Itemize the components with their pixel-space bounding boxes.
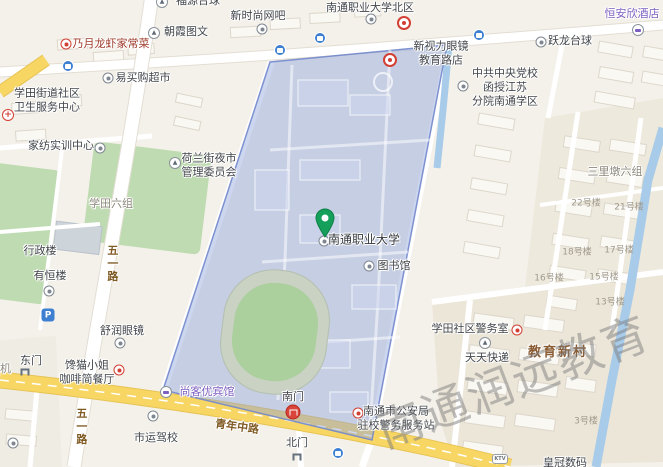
label-line: 新视力眼镜 — [414, 39, 469, 53]
building-label: 18号楼 — [562, 247, 591, 258]
building-label: 21号楼 — [614, 202, 643, 213]
poi-label-health-center[interactable]: 学田街道社区 卫生服务中心 — [14, 86, 80, 114]
label-line: 荷兰街夜市 — [182, 151, 237, 165]
poi-label-billiards-yuelong[interactable]: 跃龙台球 — [548, 34, 592, 48]
poi-label-inn[interactable]: 尚客优宾馆 — [180, 385, 235, 399]
east-gate-icon[interactable] — [21, 369, 30, 376]
building-label: 3号楼 — [574, 416, 598, 427]
building-label: 16号楼 — [534, 273, 563, 284]
night-market-office-icon[interactable] — [169, 157, 181, 169]
poi-label-training-center[interactable]: 家纺实训中心 — [28, 139, 94, 153]
poi-label-police-room[interactable]: 学田社区警务室 — [432, 322, 509, 336]
label-line: 驻校警务服务站 — [358, 418, 435, 432]
building-label: 13号楼 — [595, 297, 624, 308]
glasses-shop-marker-icon[interactable] — [383, 53, 397, 67]
district-label-sanlidun6: 三里墩六组 — [588, 165, 643, 179]
school-north-campus-icon[interactable] — [366, 14, 377, 25]
poi-label-driving-school[interactable]: 市运驾校 — [134, 431, 178, 445]
poi-label-chaoxia[interactable]: 朝霞图文 — [164, 25, 208, 39]
map-canvas[interactable]: + P KTV 福源台球 朝霞图文 乃月龙虾家常菜 新时尚网吧 南通职业大学北区… — [0, 0, 663, 467]
small-poi-icon[interactable] — [8, 438, 19, 449]
gate-label-east[interactable]: 东门 — [20, 354, 42, 368]
poi-label-cafe[interactable]: 馋猫小姐 咖啡简餐厅 — [60, 358, 115, 386]
supermarket-icon[interactable] — [103, 73, 114, 84]
label-line: 教育路店 — [414, 53, 469, 67]
bus-stop-icon[interactable] — [314, 32, 326, 44]
north-gate-icon[interactable] — [293, 454, 302, 461]
party-school-icon[interactable] — [458, 81, 469, 92]
label-line: 馋猫小姐 — [60, 358, 115, 372]
training-center-icon[interactable] — [95, 143, 106, 154]
poi-label-naiyue[interactable]: 乃月龙虾家常菜 — [73, 37, 150, 51]
poi-label-admin-building[interactable]: 行政楼 — [24, 244, 57, 258]
label-line: 函授江苏 — [472, 80, 538, 94]
optical-shop-icon[interactable] — [115, 338, 126, 349]
bus-stop-icon[interactable] — [274, 44, 286, 56]
building-label: 15号楼 — [589, 272, 618, 283]
bus-stop-icon[interactable] — [473, 29, 485, 41]
district-label-jiaoyu-xincun: 教育新村 — [528, 345, 588, 361]
restaurant-icon[interactable] — [61, 39, 72, 50]
poi-label-supermarket[interactable]: 易买购超市 — [116, 71, 171, 85]
health-center-cross-icon[interactable]: + — [2, 109, 14, 121]
gate-label-south[interactable]: 南门 — [282, 390, 304, 404]
poi-label-university[interactable]: 南通职业大学 — [328, 233, 400, 248]
label-line: 咖啡简餐厅 — [60, 372, 115, 386]
internet-cafe-icon[interactable] — [257, 24, 268, 35]
building-label: 22号楼 — [571, 198, 600, 209]
bus-stop-icon[interactable] — [332, 447, 344, 459]
road-label-wuyi-south: 五一路 — [74, 408, 88, 447]
hotel-bed-icon[interactable] — [632, 24, 644, 36]
poi-label-night-market[interactable]: 荷兰街夜市 管理委员会 — [182, 151, 237, 179]
billiards-hall-icon[interactable] — [536, 37, 547, 48]
poi-label-north-campus[interactable]: 南通职业大学北区 — [326, 1, 414, 15]
label-line: 学田街道社区 — [14, 86, 80, 100]
building-label: 17号楼 — [604, 245, 633, 256]
poi-label-express[interactable]: 天天快递 — [465, 351, 509, 365]
library-icon[interactable] — [364, 261, 375, 272]
red-marker-icon[interactable] — [397, 16, 411, 30]
bus-stop-icon[interactable] — [62, 60, 74, 72]
driving-school-icon[interactable] — [148, 411, 159, 422]
poi-label-optical[interactable]: 舒润眼镜 — [100, 324, 144, 338]
poi-label-digital-shop[interactable]: 皇冠数码 — [543, 456, 587, 467]
label-line: 中共中央党校 — [472, 66, 538, 80]
poi-label-hotel-hengan[interactable]: 恒安欣酒店 — [605, 7, 660, 21]
poi-label-youheng[interactable]: 有恒楼 — [34, 269, 67, 283]
label-line: 南通市公安局 — [358, 404, 435, 418]
label-line: 分院南通学区 — [472, 94, 538, 108]
parking-icon[interactable]: P — [42, 309, 55, 322]
label-line: 卫生服务中心 — [14, 100, 80, 114]
parking-letter: P — [45, 310, 52, 320]
poi-label-internet-cafe[interactable]: 新时尚网吧 — [231, 9, 286, 23]
police-room-icon[interactable] — [512, 325, 523, 336]
poi-label-library[interactable]: 图书馆 — [378, 259, 411, 273]
south-gate-marker-icon[interactable] — [286, 405, 301, 420]
location-pin-icon[interactable] — [314, 208, 336, 238]
ktv-icon[interactable]: KTV — [492, 454, 508, 464]
inn-bed-icon[interactable] — [160, 386, 172, 398]
poi-label-partial-left: 电机 — [0, 362, 11, 376]
print-shop-icon[interactable] — [148, 27, 160, 39]
youheng-building-icon[interactable] — [44, 286, 55, 297]
cafe-icon[interactable] — [114, 365, 125, 376]
express-delivery-icon[interactable] — [479, 337, 491, 349]
poi-label-billiards-top[interactable]: 福源台球 — [176, 0, 220, 8]
ktv-letters: KTV — [494, 456, 505, 462]
poi-label-glasses-shop[interactable]: 新视力眼镜 教育路店 — [414, 39, 469, 67]
gate-label-north[interactable]: 北门 — [286, 436, 308, 450]
road-label-wuyi-north: 五一路 — [105, 245, 119, 284]
label-line: 管理委员会 — [182, 165, 237, 179]
district-label-xuetian6: 学田六组 — [89, 197, 133, 211]
poi-label-police-station[interactable]: 南通市公安局 驻校警务服务站 — [358, 404, 435, 432]
poi-label-party-school[interactable]: 中共中央党校 函授江苏 分院南通学区 — [472, 66, 538, 107]
